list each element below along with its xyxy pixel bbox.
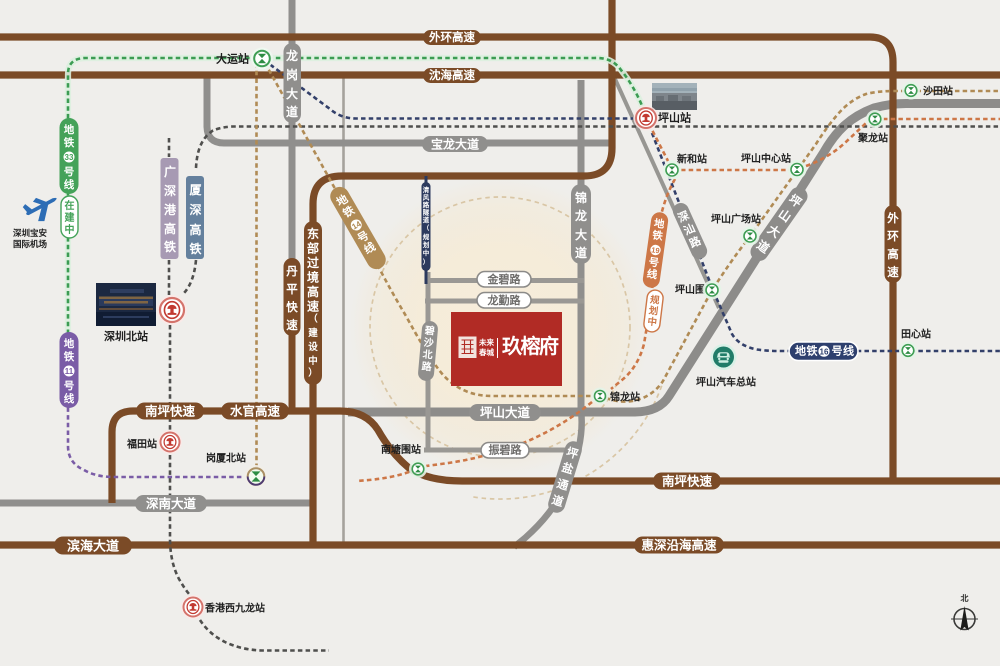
svg-text:清风路隧道（规划中）: 清风路隧道（规划中） bbox=[423, 185, 430, 266]
svg-text:号线: 号线 bbox=[64, 166, 75, 191]
svg-text:振碧路: 振碧路 bbox=[489, 443, 523, 457]
svg-text:坪山站: 坪山站 bbox=[658, 111, 691, 125]
svg-text:地: 地 bbox=[795, 344, 806, 358]
svg-text:聚龙站: 聚龙站 bbox=[857, 132, 888, 145]
svg-text:线: 线 bbox=[843, 344, 854, 358]
svg-text:坪山大道: 坪山大道 bbox=[480, 405, 531, 420]
svg-text:龙勤路: 龙勤路 bbox=[487, 293, 522, 307]
svg-text:东部过境高速: 东部过境高速 bbox=[307, 226, 319, 314]
svg-text:铁: 铁 bbox=[807, 344, 818, 358]
svg-text:香港西九龙站: 香港西九龙站 bbox=[205, 602, 265, 615]
svg-text:大运站: 大运站 bbox=[216, 52, 249, 66]
svg-text:水官高速: 水官高速 bbox=[230, 404, 281, 419]
svg-text:南坪快速: 南坪快速 bbox=[145, 404, 196, 419]
svg-text:滨海大道: 滨海大道 bbox=[67, 539, 119, 554]
svg-text:号: 号 bbox=[832, 345, 843, 358]
svg-text:岗厦北站: 岗厦北站 bbox=[206, 452, 246, 465]
svg-text:未来: 未来 bbox=[479, 337, 494, 347]
svg-text:北: 北 bbox=[961, 593, 969, 603]
svg-text:33: 33 bbox=[65, 153, 74, 162]
svg-text:深圳宝安: 深圳宝安 bbox=[13, 228, 48, 238]
svg-text:沙田站: 沙田站 bbox=[923, 85, 953, 98]
svg-text:南坪快速: 南坪快速 bbox=[662, 474, 713, 489]
svg-text:锦龙站: 锦龙站 bbox=[610, 391, 640, 404]
svg-text:坪山中心站: 坪山中心站 bbox=[741, 152, 791, 165]
svg-text:在建中: 在建中 bbox=[64, 199, 76, 236]
svg-text:春城: 春城 bbox=[479, 347, 494, 357]
svg-text:坪山汽车总站: 坪山汽车总站 bbox=[696, 376, 756, 389]
svg-text:广深港高铁: 广深港高铁 bbox=[164, 164, 177, 254]
svg-text:11: 11 bbox=[65, 367, 74, 376]
svg-text:新和站: 新和站 bbox=[677, 153, 707, 166]
svg-text:玖榕府: 玖榕府 bbox=[502, 334, 559, 358]
svg-text:田心站: 田心站 bbox=[901, 328, 931, 341]
svg-text:坪山广场站: 坪山广场站 bbox=[711, 213, 761, 226]
svg-text:南塘围站: 南塘围站 bbox=[381, 443, 421, 456]
svg-text:金碧路: 金碧路 bbox=[487, 272, 522, 286]
svg-text:宝龙大道: 宝龙大道 bbox=[431, 137, 479, 152]
svg-text:福田站: 福田站 bbox=[126, 438, 157, 451]
svg-text:沈海高速: 沈海高速 bbox=[429, 68, 475, 82]
svg-text:国际机场: 国际机场 bbox=[13, 239, 48, 249]
svg-text:外环高速: 外环高速 bbox=[428, 30, 475, 44]
svg-text:19: 19 bbox=[651, 245, 661, 255]
svg-text:（建设中）: （建设中） bbox=[307, 313, 318, 379]
svg-text:惠深沿海高速: 惠深沿海高速 bbox=[641, 538, 717, 553]
svg-text:号线: 号线 bbox=[64, 380, 75, 405]
svg-text:16: 16 bbox=[820, 348, 829, 357]
svg-text:深圳北站: 深圳北站 bbox=[104, 329, 148, 343]
svg-text:深南大道: 深南大道 bbox=[146, 496, 197, 511]
